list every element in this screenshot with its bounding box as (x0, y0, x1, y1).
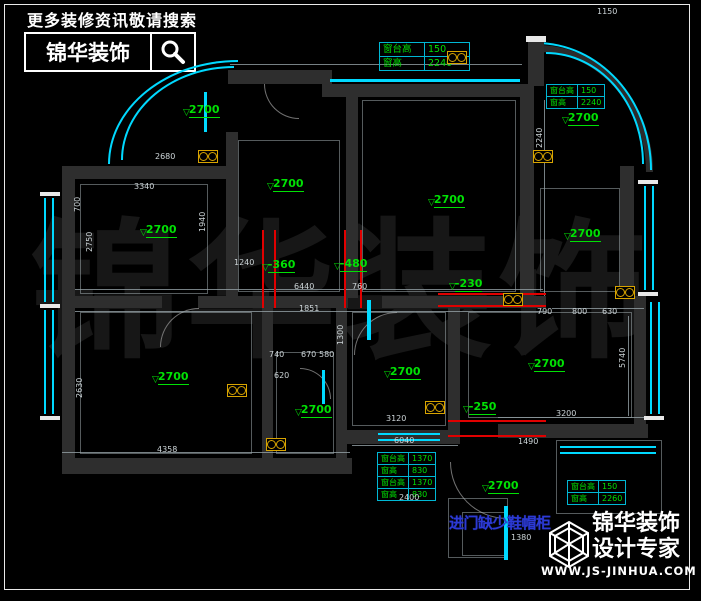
level-marker: ▽2700 (140, 224, 177, 238)
socket-circle (199, 152, 208, 161)
window-glass-line (650, 302, 652, 414)
dimension-line (230, 64, 522, 65)
socket-symbol-icon (198, 150, 218, 163)
level-value: 2700 (390, 366, 421, 380)
dimension-label: 1150 (597, 8, 617, 16)
wall-segment (228, 70, 332, 84)
socket-symbol-icon (227, 384, 247, 397)
table-value-cell: 830 (409, 465, 436, 477)
dimension-line (552, 308, 644, 309)
level-value: 2700 (146, 224, 177, 238)
dimension-label: 4358 (157, 446, 177, 454)
level-value: 2700 (568, 112, 599, 126)
table-label-cell: 窗台高 (568, 481, 599, 493)
wall-segment (448, 308, 460, 432)
wall-segment (528, 40, 544, 86)
table-value-cell: 1370 (409, 453, 436, 465)
window-glass-line (378, 433, 440, 435)
wall-cap (526, 36, 546, 42)
socket-circle (448, 53, 457, 62)
wall-segment (62, 166, 232, 179)
footer-website: WWW.JS-JINHUA.COM (541, 564, 687, 578)
socket-circle (208, 152, 217, 161)
level-marker: ▽2700 (295, 404, 332, 418)
level-value: 2700 (273, 178, 304, 192)
wall-segment (262, 308, 273, 458)
socket-symbol-icon (447, 51, 467, 64)
window-glass-line (52, 198, 54, 302)
window-glass-line (560, 446, 656, 448)
level-value: -250 (469, 401, 497, 415)
dimension-label: 2400 (399, 494, 419, 502)
dimension-label: 1300 (337, 325, 345, 345)
table-label-cell: 窗高 (380, 57, 425, 71)
window-glass-line (560, 452, 656, 454)
level-marker: ▽-480 (334, 258, 367, 272)
socket-circle (504, 295, 513, 304)
table-value-cell: 2240 (578, 97, 605, 109)
socket-symbol-icon (533, 150, 553, 163)
dimension-label: 740 (269, 351, 284, 359)
table-value-cell: 2260 (599, 493, 626, 505)
promo-brand-name: 锦华装饰 (26, 34, 150, 70)
level-value: 2700 (434, 194, 465, 208)
window-height-table: 窗台高150窗高2240 (546, 84, 605, 109)
dimension-line (628, 316, 629, 416)
level-reference-line (438, 293, 546, 295)
window-glass-line (367, 300, 371, 340)
dimension-label: 670 (301, 351, 316, 359)
annotation-note: 进门缺少鞋帽柜 (449, 512, 551, 533)
level-marker: ▽2700 (152, 371, 189, 385)
level-marker: ▽2700 (428, 194, 465, 208)
wall-segment (226, 132, 238, 298)
level-marker: ▽-230 (449, 278, 482, 292)
dimension-label: 630 (602, 308, 617, 316)
dimension-label: 580 (319, 351, 334, 359)
wall-cap (40, 416, 60, 420)
wall-segment (62, 296, 162, 308)
socket-circle (616, 288, 625, 297)
socket-circle (228, 386, 237, 395)
level-value: -480 (340, 258, 368, 272)
window-glass-line (52, 310, 54, 414)
socket-circle (534, 152, 543, 161)
level-marker: ▽-360 (262, 259, 295, 273)
socket-symbol-icon (425, 401, 445, 414)
table-label-cell: 窗高 (378, 465, 409, 477)
cad-floorplan-image: 锦华装饰 更多装修资讯敬请搜索 锦华装饰 窗台高150窗高2240窗台高150窗… (0, 0, 701, 601)
dimension-label: 2750 (86, 232, 94, 252)
socket-symbol-icon (615, 286, 635, 299)
dimension-label: 2630 (76, 378, 84, 398)
wall-cap (40, 304, 60, 308)
dimension-label: 3120 (386, 415, 406, 423)
window-glass-line (44, 310, 46, 414)
level-marker: ▽2700 (528, 358, 565, 372)
window-height-table: 窗台高150窗高2260 (567, 480, 626, 505)
socket-symbol-icon (266, 438, 286, 451)
level-value: -230 (455, 278, 483, 292)
wall-cap (638, 292, 658, 296)
window-glass-line (658, 302, 660, 414)
dimension-label: 6440 (294, 283, 314, 291)
socket-circle (435, 403, 444, 412)
level-marker: ▽2700 (482, 480, 519, 494)
promo-brand-box: 锦华装饰 (24, 32, 196, 72)
table-label-cell: 窗台高 (547, 85, 578, 97)
dimension-line (62, 452, 350, 453)
socket-circle (513, 295, 522, 304)
socket-circle (267, 440, 276, 449)
footer-tagline: 设计专家 (592, 537, 680, 563)
table-label-cell: 窗台高 (380, 43, 425, 57)
dimension-label: 6040 (394, 437, 414, 445)
window-glass-line (644, 186, 646, 290)
window-glass-line (330, 79, 520, 82)
window-glass-line (322, 370, 325, 404)
socket-circle (625, 288, 634, 297)
window-glass-line (652, 186, 654, 290)
level-value: 2700 (301, 404, 332, 418)
wall-segment (520, 84, 534, 298)
socket-circle (457, 53, 466, 62)
dimension-label: 2680 (155, 153, 175, 161)
level-marker: ▽2700 (183, 104, 220, 118)
dimension-label: 1380 (511, 534, 531, 542)
level-marker: ▽2700 (267, 178, 304, 192)
wall-cap (40, 192, 60, 196)
wall-segment (634, 296, 646, 428)
level-value: 2700 (488, 480, 519, 494)
level-value: 2700 (534, 358, 565, 372)
level-reference-line (438, 305, 546, 307)
level-marker: ▽-250 (463, 401, 496, 415)
table-label-cell: 窗高 (568, 493, 599, 505)
room-outline (80, 184, 208, 294)
dimension-label: 3340 (134, 183, 154, 191)
dimension-label: 5740 (619, 348, 627, 368)
dimension-label: 1940 (199, 212, 207, 232)
wall-segment (198, 296, 348, 308)
table-value-cell: 150 (578, 85, 605, 97)
dimension-label: 3200 (556, 410, 576, 418)
search-icon (150, 34, 194, 70)
table-value-cell: 1370 (409, 477, 436, 489)
socket-symbol-icon (503, 293, 523, 306)
table-label-cell: 窗台高 (378, 477, 409, 489)
wall-cap (638, 180, 658, 184)
dimension-label: 1490 (518, 438, 538, 446)
socket-circle (276, 440, 285, 449)
dimension-label: 800 (572, 308, 587, 316)
dimension-label: 1851 (299, 305, 319, 313)
footer-brand: 锦华装饰 (592, 511, 680, 537)
level-value: -360 (268, 259, 296, 273)
dimension-label: 760 (352, 283, 367, 291)
socket-circle (426, 403, 435, 412)
level-marker: ▽2700 (564, 228, 601, 242)
socket-circle (237, 386, 246, 395)
dimension-label: 1240 (234, 259, 254, 267)
dimension-label: 620 (274, 372, 289, 380)
dimension-label: 700 (74, 197, 82, 212)
table-value-cell: 150 (599, 481, 626, 493)
table-label-cell: 窗台高 (378, 453, 409, 465)
table-label-cell: 窗高 (547, 97, 578, 109)
level-reference-line (448, 420, 546, 422)
window-glass-line (44, 198, 46, 302)
dimension-label: 790 (537, 308, 552, 316)
promo-tagline: 更多装修资讯敬请搜索 (27, 7, 197, 31)
dimension-line (352, 445, 458, 446)
socket-circle (543, 152, 552, 161)
level-marker: ▽2700 (384, 366, 421, 380)
dimension-line (544, 100, 545, 296)
footer-logo-text: 锦华装饰 设计专家 (592, 511, 680, 564)
level-value: 2700 (189, 104, 220, 118)
wall-cap (644, 416, 664, 420)
level-value: 2700 (570, 228, 601, 242)
level-value: 2700 (158, 371, 189, 385)
level-marker: ▽2700 (562, 112, 599, 126)
dimension-label: 2240 (536, 128, 544, 148)
wall-segment (62, 458, 352, 474)
wall-segment (620, 166, 634, 298)
